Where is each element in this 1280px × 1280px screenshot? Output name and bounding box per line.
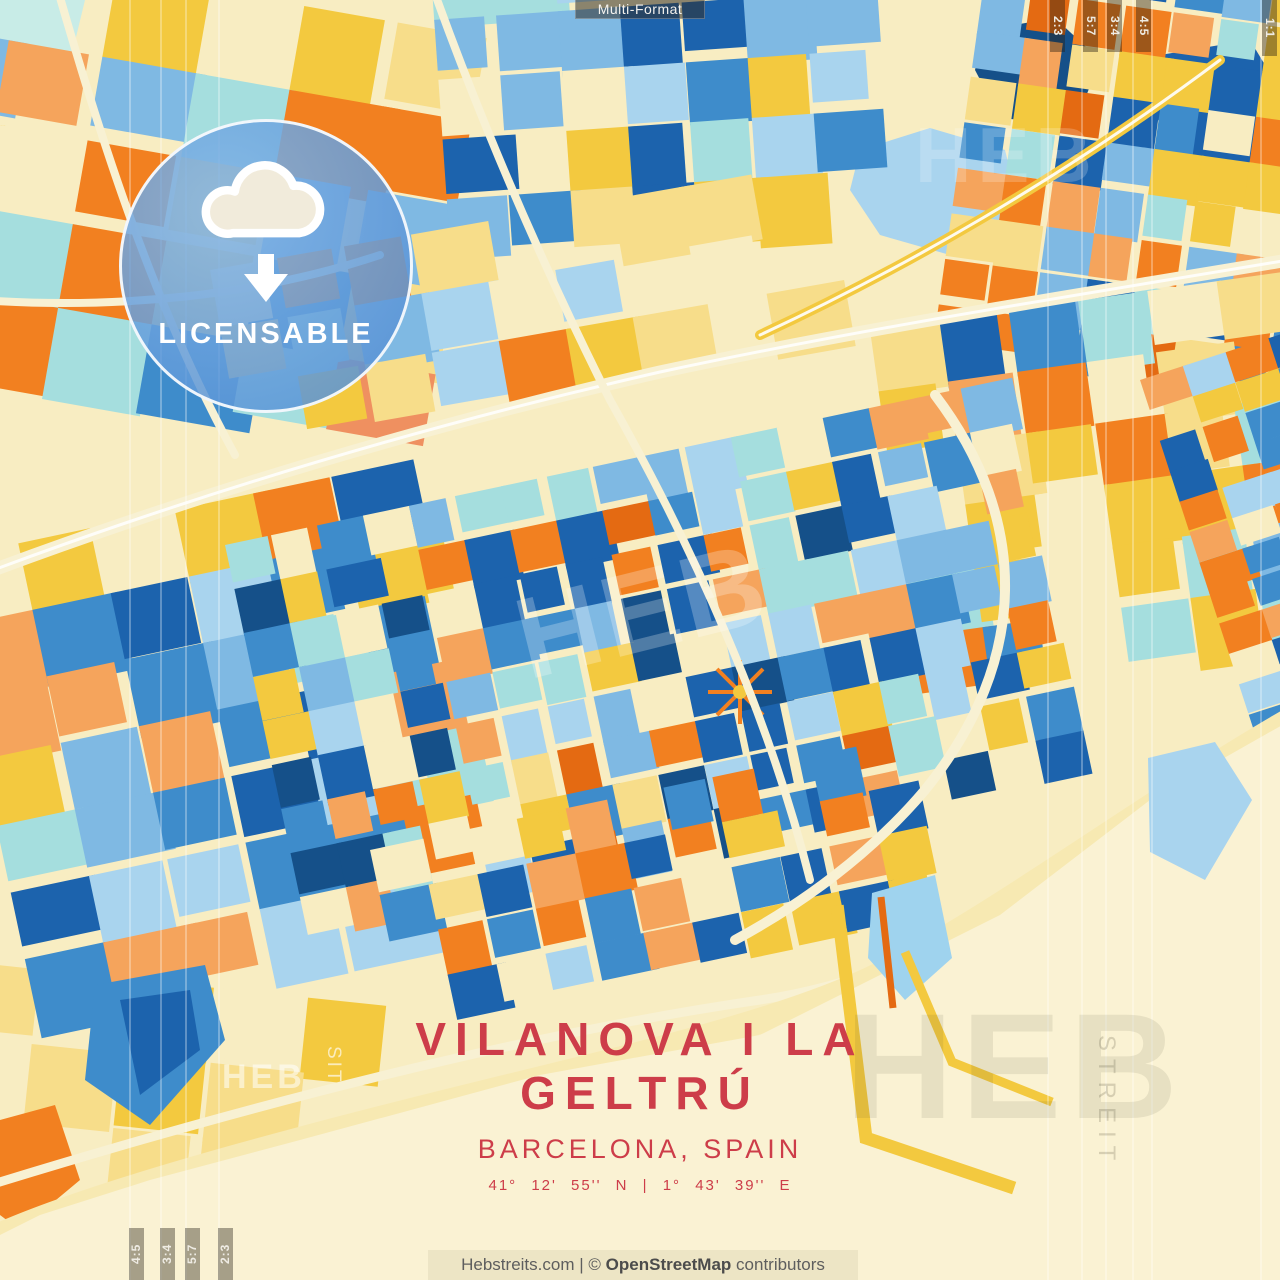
multi-format-label: Multi-Format xyxy=(575,0,705,19)
cloud-icon xyxy=(191,148,341,252)
footer-separator: | xyxy=(579,1255,583,1274)
format-tab-3-4: 3:4 xyxy=(1107,0,1122,52)
attribution-footer: Hebstreits.com | © OpenStreetMap contrib… xyxy=(428,1250,858,1280)
format-tab-2-3: 2:3 xyxy=(1050,0,1065,52)
osm-attribution: OpenStreetMap xyxy=(606,1255,732,1274)
title-block: VILANOVA I LA GELTRÚ BARCELONA, SPAIN 41… xyxy=(290,1012,990,1194)
coordinates-label: 41° 12' 55'' N | 1° 43' 39'' E xyxy=(290,1177,990,1194)
attribution-suffix: contributors xyxy=(736,1255,825,1274)
city-title-line1: VILANOVA I LA xyxy=(290,1012,990,1066)
licensable-badge: LICENSABLE xyxy=(119,119,413,413)
format-tab-5-7: 5:7 xyxy=(1083,0,1098,52)
region-subtitle: BARCELONA, SPAIN xyxy=(290,1134,990,1165)
city-title-line2: GELTRÚ xyxy=(290,1066,990,1120)
download-arrow-icon xyxy=(236,254,296,304)
format-tab-bottom-5-7: 5:7 xyxy=(185,1228,200,1280)
format-tab-4-5: 4:5 xyxy=(1136,0,1151,52)
format-tab-bottom-2-3: 2:3 xyxy=(218,1228,233,1280)
map-poster: HEB STREIT HEB HEB SIT HEB Multi-Format … xyxy=(0,0,1280,1280)
copyright-symbol: © xyxy=(588,1255,601,1274)
format-tab-1-1: 1:1 xyxy=(1262,0,1277,56)
format-tab-bottom-3-4: 3:4 xyxy=(160,1228,175,1280)
site-name: Hebstreits.com xyxy=(461,1255,574,1274)
format-tab-bottom-4-5: 4:5 xyxy=(129,1228,144,1280)
badge-label: LICENSABLE xyxy=(158,318,373,351)
